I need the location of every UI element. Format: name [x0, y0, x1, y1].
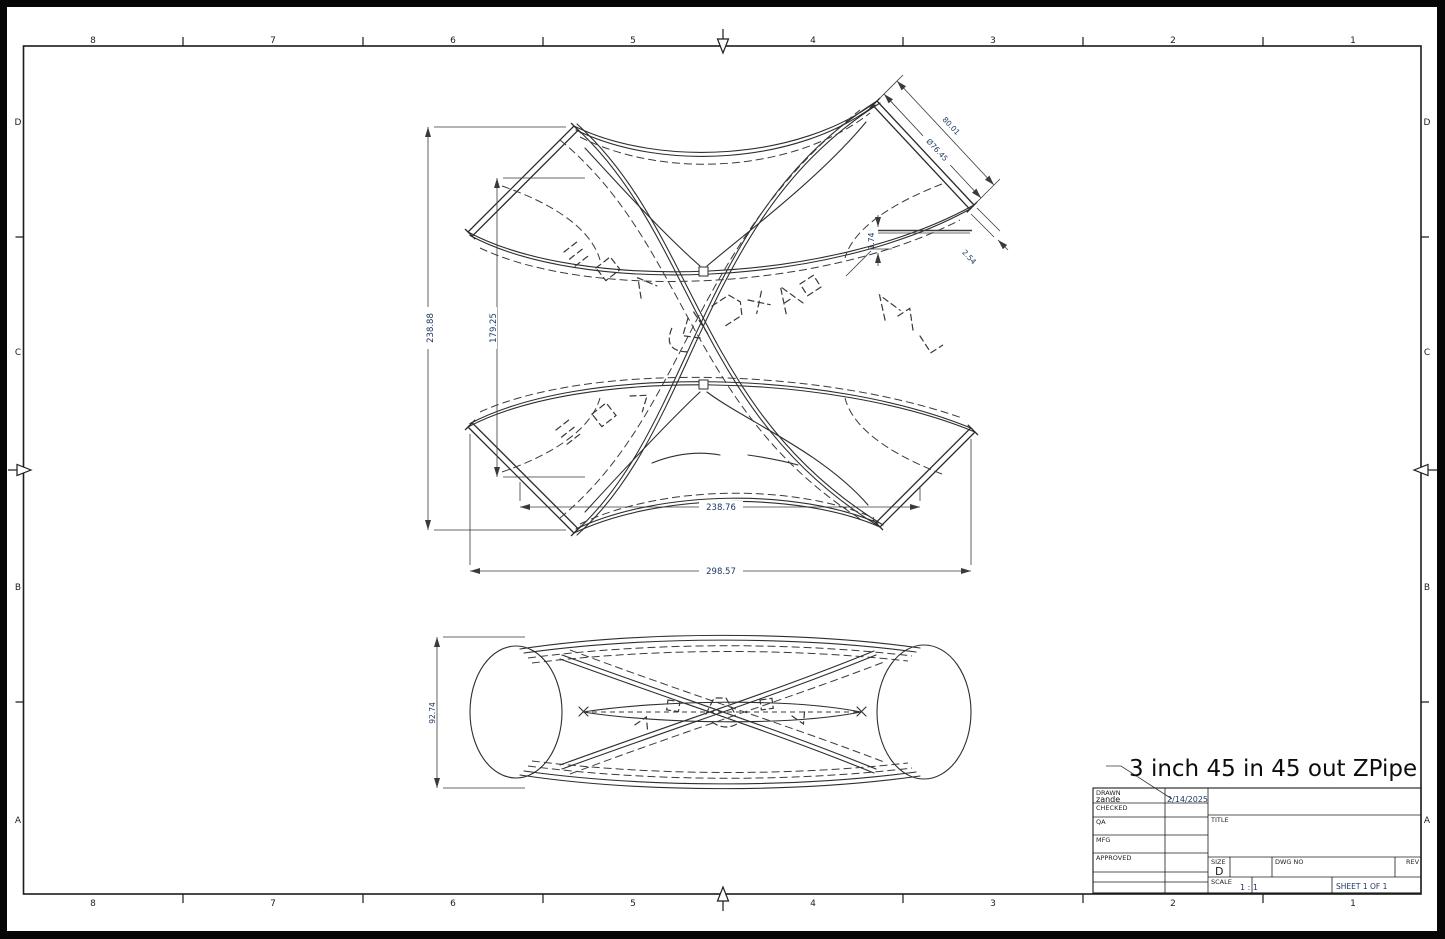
titleblock-drawn-date: 2/14/2025 [1167, 795, 1208, 804]
titleblock-approved-label: APPROVED [1096, 854, 1131, 862]
zone-label-left: A [15, 816, 22, 826]
zone-label-bottom: 8 [90, 899, 96, 909]
titleblock-drawn-name: zande [1096, 795, 1120, 804]
zone-label-bottom: 3 [990, 899, 996, 909]
dimension-wall-offset: 1.74 [867, 232, 876, 249]
titleblock-size-value: D [1215, 865, 1223, 878]
zone-label-top: 5 [630, 36, 636, 46]
zone-label-top: 3 [990, 36, 996, 46]
dimension-inner-width: 238.76 [706, 503, 736, 513]
zone-label-right: D [1424, 118, 1431, 128]
zone-label-right: A [1424, 816, 1431, 826]
zone-label-top: 8 [90, 36, 96, 46]
dimension-side-height: 92.74 [428, 702, 437, 724]
zone-label-top: 1 [1350, 36, 1356, 46]
zone-label-top: 4 [810, 36, 816, 46]
zone-label-left: C [15, 348, 21, 358]
zone-label-top: 2 [1170, 36, 1176, 46]
zone-label-bottom: 6 [450, 899, 456, 909]
zone-label-left: B [15, 583, 21, 593]
drawing-sheet [7, 7, 1437, 931]
dimension-inner-height: 179.25 [489, 313, 499, 343]
titleblock-checked-label: CHECKED [1096, 804, 1127, 812]
zone-label-bottom: 2 [1170, 899, 1176, 909]
zone-label-right: C [1424, 348, 1430, 358]
titleblock-sheet-text: SHEET 1 OF 1 [1336, 882, 1388, 891]
titleblock-title-label: TITLE [1210, 816, 1229, 824]
zone-label-left: D [15, 118, 22, 128]
drawing-canvas: 8 7 6 5 4 3 2 1 8 7 6 5 4 3 2 1 D C B A … [0, 0, 1445, 939]
dimension-overall-height: 238.88 [426, 313, 436, 343]
zone-label-bottom: 5 [630, 899, 636, 909]
titleblock-dwgno-label: DWG NO [1275, 858, 1304, 866]
zone-label-top: 6 [450, 36, 456, 46]
titleblock-scale-label: SCALE [1211, 878, 1232, 886]
zone-label-top: 7 [270, 36, 276, 46]
part-name-label: 3 inch 45 in 45 out ZPipe [1129, 756, 1417, 782]
titleblock-qa-label: QA [1096, 818, 1106, 826]
dimension-overall-width: 298.57 [706, 567, 736, 577]
zone-label-bottom: 4 [810, 899, 816, 909]
titleblock-mfg-label: MFG [1096, 836, 1110, 844]
titleblock-scale-value: 1 : 1 [1240, 883, 1258, 892]
zone-label-bottom: 7 [270, 899, 276, 909]
zone-label-bottom: 1 [1350, 899, 1356, 909]
titleblock-rev-label: REV [1406, 858, 1420, 866]
zone-label-right: B [1424, 583, 1430, 593]
